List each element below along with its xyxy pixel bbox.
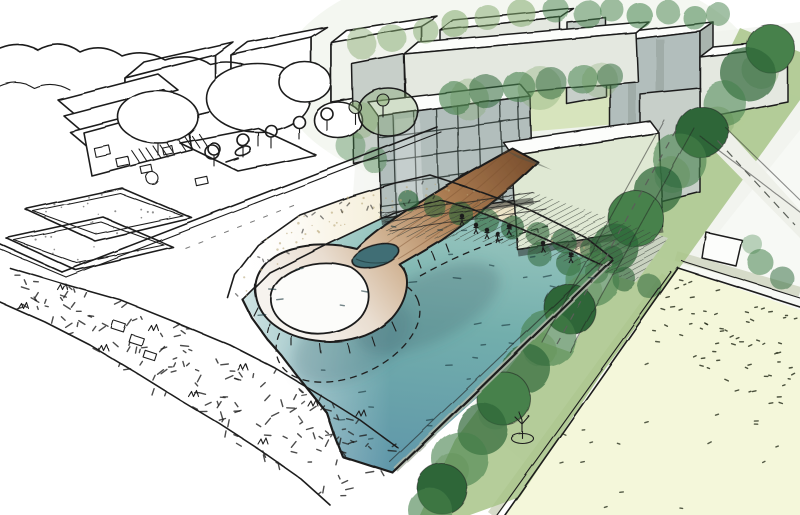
architectural-sketch (0, 0, 800, 515)
pier-ring-opening (271, 263, 369, 334)
